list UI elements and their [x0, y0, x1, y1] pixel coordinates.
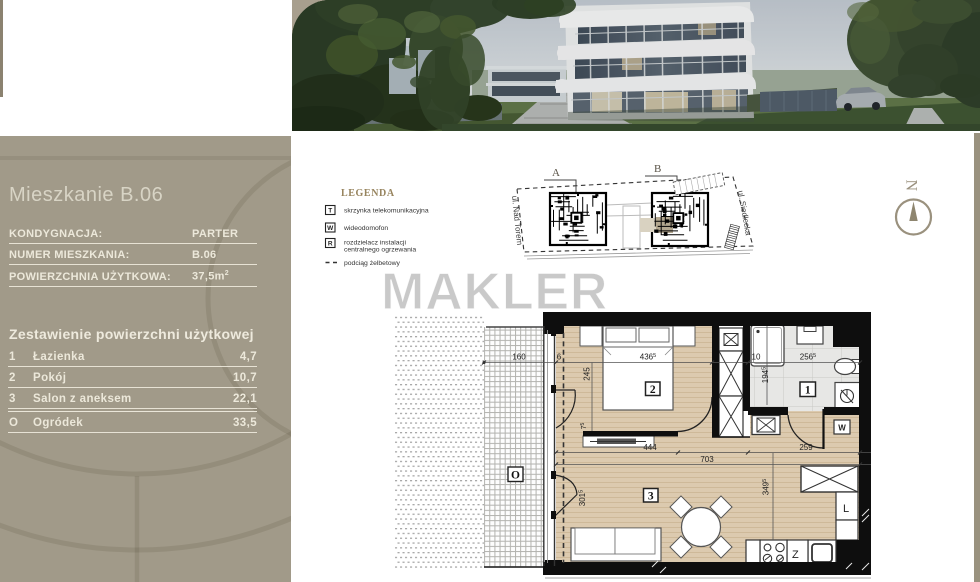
svg-text:6: 6: [557, 353, 562, 362]
svg-text:podciąg żelbetowy: podciąg żelbetowy: [344, 260, 401, 267]
svg-text:W: W: [327, 225, 334, 232]
svg-text:L: L: [843, 503, 849, 515]
svg-text:10: 10: [752, 353, 761, 362]
svg-text:centralnego ogrzewania: centralnego ogrzewania: [344, 246, 416, 253]
svg-text:wideodomofon: wideodomofon: [343, 225, 388, 232]
svg-text:N: N: [903, 180, 920, 192]
svg-text:245: 245: [583, 367, 592, 381]
svg-text:2: 2: [650, 384, 656, 396]
svg-text:160: 160: [512, 353, 526, 362]
svg-text:O: O: [511, 470, 520, 482]
svg-text:444: 444: [643, 443, 657, 452]
svg-text:Z: Z: [792, 549, 799, 561]
svg-text:B: B: [654, 163, 661, 175]
svg-text:ul. Nad Torem: ul. Nad Torem: [510, 195, 524, 246]
svg-text:A: A: [552, 167, 560, 179]
svg-text:R: R: [328, 241, 333, 248]
svg-text:3: 3: [648, 490, 654, 502]
svg-text:rozdzielacz instalacji: rozdzielacz instalacji: [344, 239, 406, 246]
svg-text:T: T: [328, 208, 332, 215]
svg-text:LEGENDA: LEGENDA: [341, 188, 395, 199]
svg-text:skrzynka telekomunikacyjna: skrzynka telekomunikacyjna: [344, 208, 429, 215]
svg-text:1: 1: [805, 385, 811, 397]
svg-text:W: W: [838, 424, 846, 433]
svg-text:259: 259: [799, 443, 813, 452]
svg-text:703: 703: [700, 455, 714, 464]
